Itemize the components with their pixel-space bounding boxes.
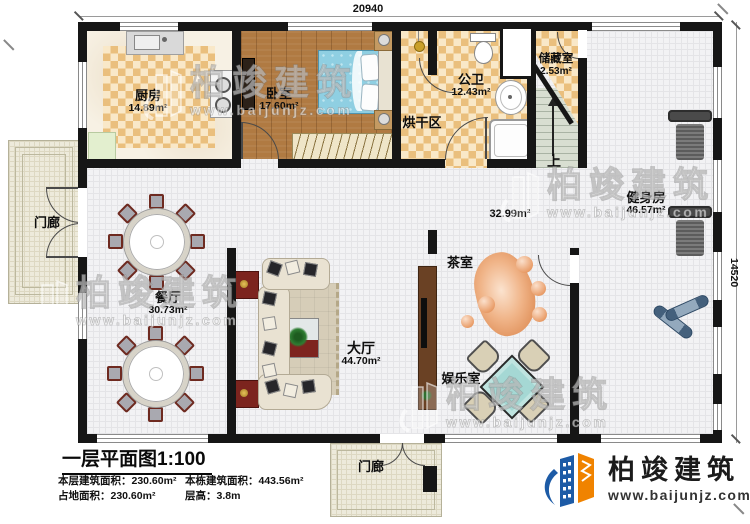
dining-chair (107, 366, 122, 381)
window (592, 22, 680, 31)
room-label-storage: 储藏室 2.53m² (528, 53, 584, 77)
stat-floor-area: 本层建筑面积：230.60m² (58, 473, 176, 488)
plant (288, 327, 308, 347)
room-area: 30.73m² (138, 305, 198, 317)
room-label-porch-left: 门廊 (22, 216, 72, 230)
window (288, 22, 372, 31)
wall-tearoom-gym (570, 283, 579, 434)
toilet-bowl (474, 41, 493, 64)
dimension-width: 20940 (338, 3, 398, 15)
area-label-foyer: 32.99m² (480, 208, 540, 220)
door-leaf (46, 187, 80, 189)
room-label-hall: 大厅 44.70m² (330, 341, 392, 368)
window (713, 327, 722, 374)
stove-burner (215, 77, 231, 93)
sofa-pillow (262, 316, 277, 331)
room-name: 储藏室 (528, 53, 584, 66)
wardrobe (292, 133, 394, 161)
crop-tick (718, 3, 729, 14)
window (713, 404, 722, 430)
stat-label: 本栋建筑面积： (185, 475, 259, 487)
hanging-lamp-bulb (414, 41, 425, 52)
dining-chair (190, 234, 205, 249)
room-label-kitchen: 厨房 14.89m² (118, 89, 178, 115)
wall-bedroom-south (278, 159, 401, 168)
room-name: 餐厅 (138, 291, 198, 305)
pillow (360, 53, 380, 81)
brand-logo-icon (538, 447, 600, 511)
room-name: 门廊 (22, 216, 72, 230)
dining-chair (149, 275, 164, 290)
room-name: 公卫 (441, 73, 501, 87)
wall-bath-south-left (401, 159, 445, 168)
tea-stool (478, 296, 495, 313)
treadmill-belt (676, 220, 704, 256)
room-label-gym: 健身房 46.57m² (616, 191, 676, 217)
sofa-pillow (301, 379, 316, 394)
sofa-pillow (262, 291, 277, 306)
wall-dining-hall (227, 248, 236, 434)
wall-bedroom-bath (392, 22, 401, 168)
plant (421, 390, 432, 401)
dining-table (123, 341, 189, 407)
stairs-up-label: 上 (540, 154, 568, 169)
stat-value: 230.60m² (111, 490, 156, 502)
room-area: 2.53m² (528, 66, 584, 77)
room-label-tearoom: 茶室 (436, 256, 484, 270)
plan-title: 一层平面图1:100 (62, 444, 212, 475)
room-name: 门廊 (346, 460, 396, 474)
dining-chair (148, 407, 163, 422)
nightstand-lamp (378, 113, 390, 125)
room-name: 卧室 (249, 87, 309, 101)
room-area: 32.99m² (480, 208, 540, 220)
tea-stool (461, 315, 474, 328)
window (97, 434, 208, 443)
window (713, 160, 722, 212)
stat-label: 层高： (185, 490, 217, 502)
floorplan-canvas: 厨房 14.89m² 卧室 17.60m² 公卫 12.43m² 储藏室 2.5… (0, 0, 750, 524)
tea-stool (516, 256, 533, 273)
end-table-ornament (240, 280, 248, 288)
room-label-dining: 餐厅 30.73m² (138, 291, 198, 317)
room-name: 健身房 (616, 191, 676, 205)
lazy-susan (150, 235, 164, 249)
wall-drying-stub (428, 22, 437, 75)
window (713, 252, 722, 300)
treadmill-console (668, 110, 712, 122)
dining-chair (108, 234, 123, 249)
door-opening-tearoom (570, 255, 579, 283)
washbasin-drain (508, 95, 512, 99)
nightstand-lamp (378, 34, 390, 46)
sofa-pillow (283, 383, 298, 398)
dimension-height: 14520 (728, 258, 740, 298)
treadmill (662, 110, 714, 162)
dining-chair (149, 194, 164, 209)
window (713, 67, 722, 118)
door-opening-porch-bottom (380, 434, 424, 443)
porch-pier (423, 466, 437, 492)
room-label-drying: 烘干区 (393, 116, 451, 130)
wall-kitchen-south (78, 159, 241, 168)
room-name: 烘干区 (393, 116, 451, 130)
stat-storey-height: 层高：3.8m (185, 488, 240, 503)
room-name: 茶室 (436, 256, 484, 270)
kitchen-faucet (162, 37, 167, 42)
end-table-ornament (240, 389, 248, 397)
brand-logo: 柏竣建筑 www.baijunjz.com (538, 447, 750, 511)
stat-building-area: 本栋建筑面积：443.56m² (185, 473, 303, 488)
headboard (378, 48, 393, 116)
door-leaf (485, 117, 487, 159)
tea-stool (532, 307, 547, 322)
stove-burner (215, 97, 231, 113)
sofa-pillow (262, 363, 277, 378)
room-area: 46.57m² (616, 205, 676, 217)
stat-label: 本层建筑面积： (58, 475, 132, 487)
stairs-up-text: 上 (540, 154, 568, 169)
wall-tearoom-stub (428, 230, 437, 254)
window (78, 62, 87, 128)
sofa-pillow (303, 262, 318, 277)
door-leaf (241, 122, 243, 159)
kitchen-sink (134, 35, 160, 50)
brand-name: 柏竣建筑 (608, 455, 750, 486)
window (120, 22, 178, 31)
room-area: 44.70m² (330, 356, 392, 368)
tea-stool (531, 281, 546, 296)
stat-land-area: 占地面积：230.60m² (58, 488, 155, 503)
dining-chair (148, 326, 163, 341)
window (78, 293, 87, 339)
door-opening-porch-left (78, 188, 87, 257)
stat-label: 占地面积： (58, 490, 111, 502)
room-label-gameroom: 娱乐室 (430, 372, 492, 386)
dimension-line-top (80, 16, 720, 17)
room-label-bath: 公卫 12.43m² (441, 73, 501, 99)
stairs-arrow-shaft (552, 104, 554, 156)
room-name: 娱乐室 (430, 372, 492, 386)
treadmill-belt (676, 124, 704, 160)
room-area: 17.60m² (249, 101, 309, 113)
kitchen-mat (88, 132, 116, 160)
brand-text: 柏竣建筑 www.baijunjz.com (608, 455, 750, 502)
dining-chair (189, 366, 204, 381)
dining-table (124, 209, 190, 275)
stat-value: 3.8m (217, 490, 241, 502)
room-area: 14.89m² (118, 103, 178, 115)
room-label-bedroom: 卧室 17.60m² (249, 87, 309, 113)
brand-url: www.baijunjz.com (608, 487, 750, 503)
window (445, 434, 557, 443)
room-label-porch-bottom: 门廊 (346, 460, 396, 474)
pillow (360, 83, 380, 111)
stat-value: 443.56m² (259, 475, 304, 487)
tv-screen (421, 298, 427, 348)
lazy-susan (149, 367, 163, 381)
shower-inner (494, 124, 528, 157)
wall-kitchen-bedroom (232, 22, 241, 168)
stat-value: 230.60m² (132, 475, 177, 487)
room-area: 12.43m² (441, 87, 501, 99)
dimension-line-right (736, 22, 737, 443)
door-leaf (46, 256, 80, 258)
crop-tick (4, 39, 15, 50)
room-name: 大厅 (330, 341, 392, 356)
room-name: 厨房 (118, 89, 178, 103)
window (601, 434, 700, 443)
